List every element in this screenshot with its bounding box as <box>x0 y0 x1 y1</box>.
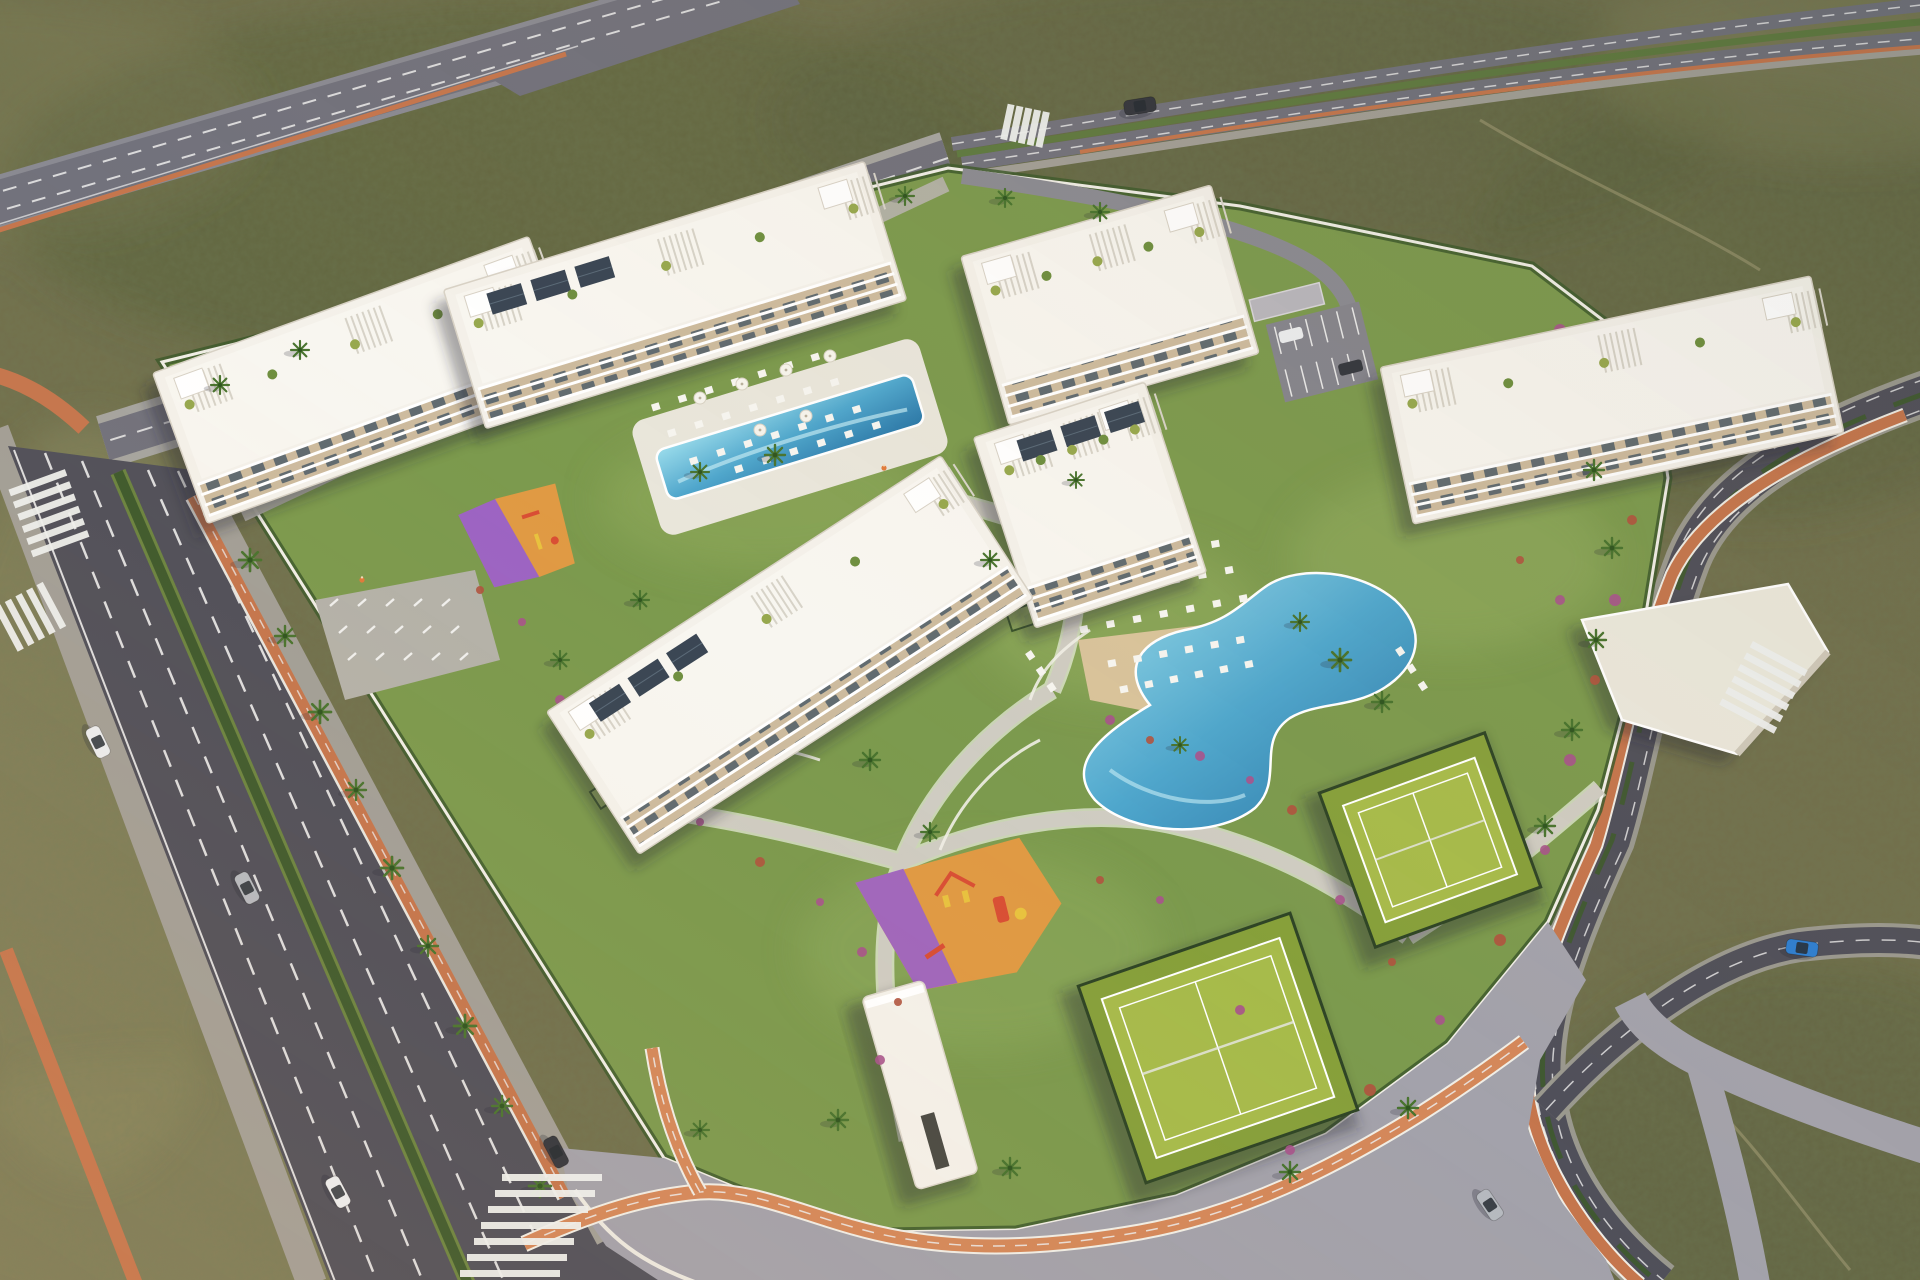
lighting-overlay <box>0 0 1920 1280</box>
aerial-render-canvas <box>0 0 1920 1280</box>
aerial-render-stage <box>0 0 1920 1280</box>
